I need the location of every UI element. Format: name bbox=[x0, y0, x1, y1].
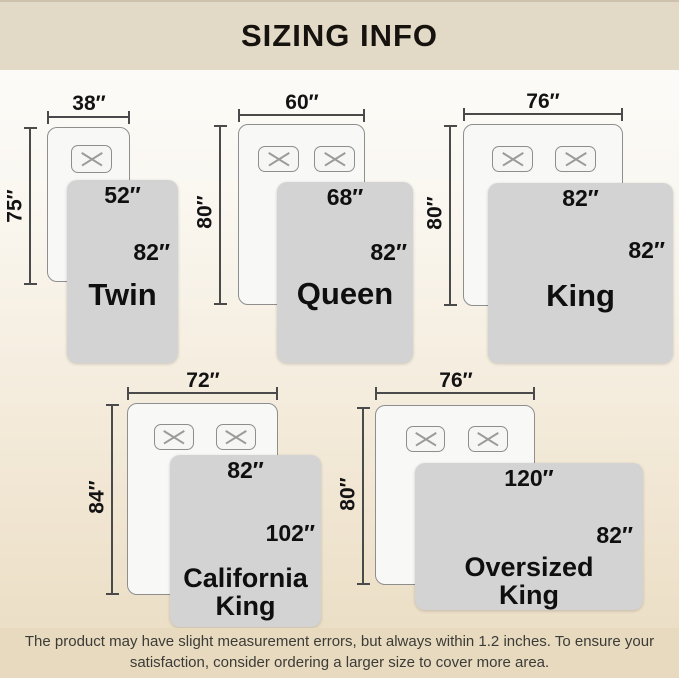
measure-tick bbox=[375, 387, 377, 400]
disclaimer-line-2: satisfaction, consider ordering a larger… bbox=[130, 654, 549, 673]
oversized-king-blanket: 120″ 82″ Oversized King bbox=[415, 463, 643, 610]
footer-disclaimer: The product may have slight measurement … bbox=[0, 628, 679, 678]
size-name-line: Oversized bbox=[415, 554, 643, 582]
pillow bbox=[406, 426, 445, 452]
oversized-king-blanket-width-label: 120″ bbox=[415, 467, 643, 490]
oversized-king-mattress-length-label: 80″ bbox=[338, 477, 359, 510]
oversized-king-blanket-length-label: 82″ bbox=[596, 524, 633, 547]
measure-line bbox=[375, 392, 535, 394]
disclaimer-line-1: The product may have slight measurement … bbox=[25, 633, 654, 652]
measure-tick bbox=[357, 583, 370, 585]
size-name-line: King bbox=[415, 582, 643, 610]
measure-tick bbox=[533, 387, 535, 400]
pillow bbox=[468, 426, 508, 452]
page-background: SIZING INFO 38″ 75″ 52″ 82″ Twin bbox=[0, 0, 679, 678]
measure-tick bbox=[357, 407, 370, 409]
oversized-king-diagram: 76″ 80″ 120″ 82″ Oversized King bbox=[0, 0, 679, 678]
pillow-x-icon bbox=[415, 432, 437, 447]
oversized-king-mattress-width-label: 76″ bbox=[439, 370, 472, 391]
measure-line bbox=[362, 407, 364, 585]
oversized-king-size-name: Oversized King bbox=[415, 554, 643, 609]
pillow-x-icon bbox=[477, 432, 499, 447]
